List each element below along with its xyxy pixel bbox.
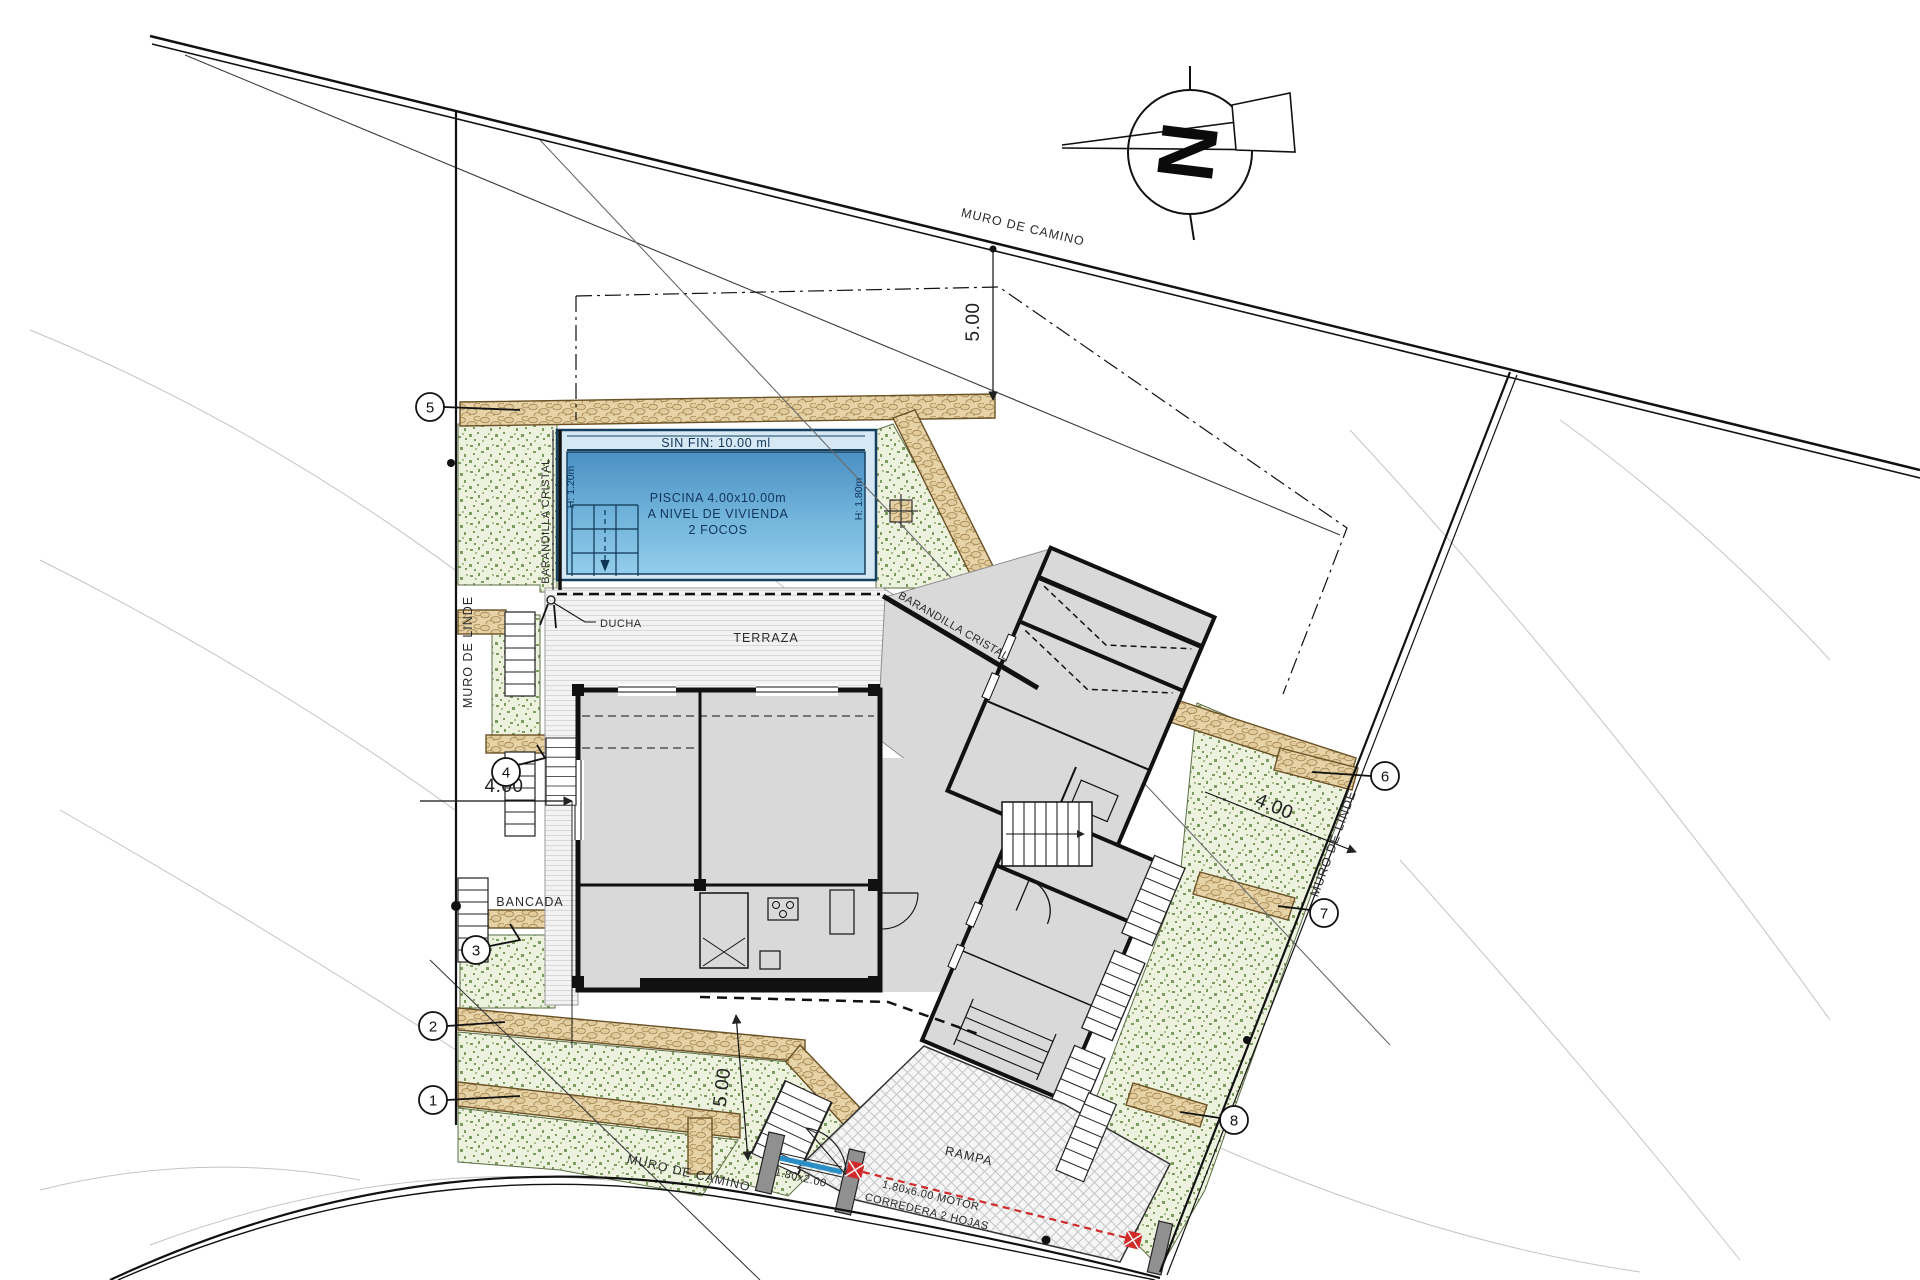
south-wall	[640, 978, 880, 990]
svg-text:8: 8	[1230, 1113, 1238, 1130]
survey-point	[1042, 1236, 1051, 1245]
north-compass: N	[1062, 66, 1295, 240]
svg-text:1: 1	[429, 1093, 437, 1110]
svg-text:3: 3	[472, 943, 480, 960]
dim-top-setback-value: 5.00	[963, 303, 984, 342]
top-road-label: MURO DE CAMINO	[960, 206, 1086, 249]
pool-lights-label: 2 FOCOS	[688, 523, 747, 537]
dim-top-setback: 5.00	[963, 246, 997, 401]
svg-text:6: 6	[1381, 769, 1389, 786]
svg-text:4: 4	[502, 765, 510, 782]
compass-flag	[1232, 93, 1295, 152]
left-boundary-label: MURO DE LINDE	[461, 596, 475, 708]
pool-level-label: A NIVEL DE VIVIENDA	[648, 507, 789, 521]
north-letter: N	[1140, 118, 1235, 186]
pool-depth-deep-label: H: 1.80m	[853, 477, 865, 520]
window	[618, 684, 676, 696]
bench-label: BANCADA	[496, 895, 563, 909]
building-main-wing	[572, 684, 918, 990]
window	[756, 684, 838, 696]
pool-name-label: PISCINA 4.00x10.00m	[650, 491, 786, 505]
pool-edge-label: SIN FIN: 10.00 ml	[661, 436, 771, 450]
svg-text:5: 5	[426, 400, 434, 417]
site-plan-drawing: 5.00 4.00 4.00 5.00 5 4 3 2 1 6 7	[0, 0, 1920, 1280]
stairwell	[1002, 802, 1092, 866]
shower-label: DUCHA	[600, 618, 642, 630]
site-plan-canvas: 5.00 4.00 4.00 5.00 5 4 3 2 1 6 7	[0, 0, 1920, 1280]
pool-railing-label: BARANDILLA CRISTAL	[540, 458, 552, 584]
svg-text:7: 7	[1320, 906, 1328, 923]
pool-depth-shallow-label: H: 1.20m	[565, 465, 577, 508]
terrace-label: TERRAZA	[733, 631, 798, 645]
svg-text:2: 2	[429, 1019, 437, 1036]
